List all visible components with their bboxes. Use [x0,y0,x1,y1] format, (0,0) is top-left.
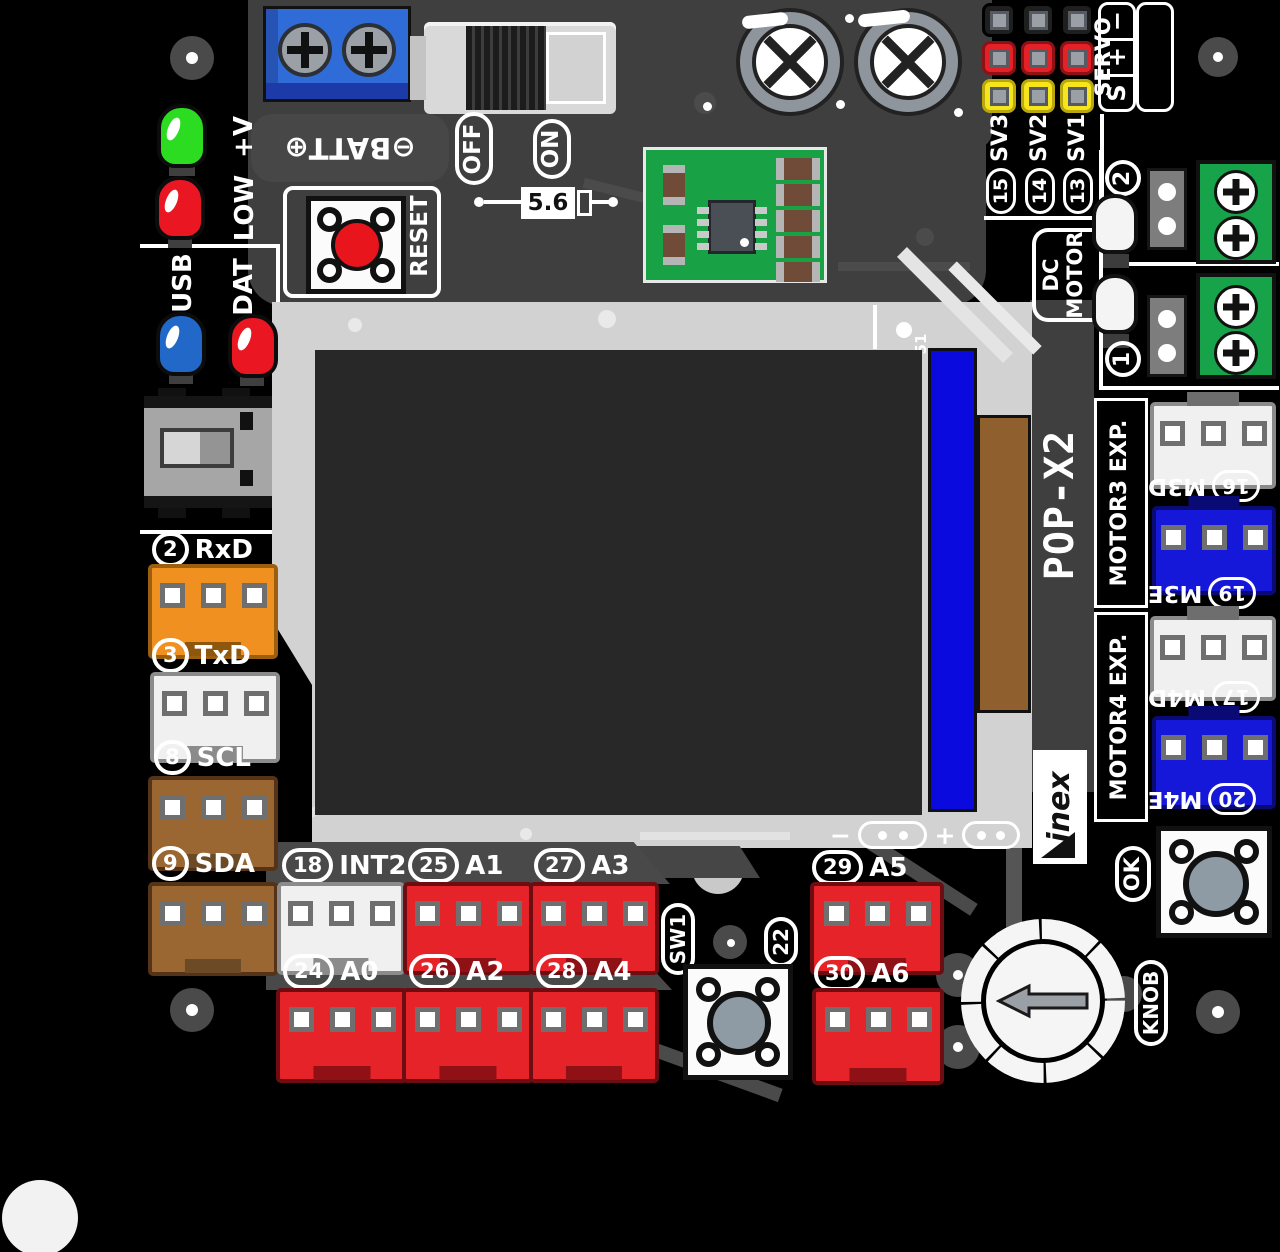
fuse-end [577,190,592,216]
pad-pair [962,821,1020,849]
lcd-silk-trace [640,832,790,840]
switch-slider[interactable] [466,26,546,110]
servo-pin-black[interactable] [1021,3,1055,37]
switch-recess [546,32,606,104]
port-a0-label: 24A0 [283,954,378,989]
sensor-module [643,147,827,283]
servo-title-box [1136,2,1174,112]
dat-label: DAT [229,254,259,320]
dc-bracket [1099,150,1103,390]
power-switch[interactable] [424,22,616,114]
hole-dot [186,1004,198,1016]
dc-led [1092,274,1138,334]
usb-port-opening [160,428,234,468]
port-txd-label: 3TxD [152,638,251,673]
port-a4[interactable] [529,988,659,1083]
trace [1006,836,1022,932]
resistor [776,158,820,180]
port-a5-label: 29A5 [812,850,907,885]
pcb-board: 51 − + ⊖BATT⊕ OFF ON [0,0,1280,1252]
board-model: POP-X2 [1034,417,1086,593]
terminal-screw[interactable] [1214,331,1258,375]
servo-pin-black[interactable] [982,3,1016,37]
terminal-screw[interactable] [1214,170,1258,214]
servo-pin-yellow[interactable] [982,79,1016,113]
port-a6-label: 30A6 [814,956,909,991]
port-m3e-label: 19M3E [1144,578,1260,608]
port-int2-label: 18INT2 [282,848,407,883]
via-dot [954,108,963,117]
port-a0[interactable] [276,988,408,1083]
brand-name: inex [1040,757,1080,857]
fuse-value: 5.6 [528,190,569,216]
resistor [776,210,820,232]
dat-led [228,314,278,378]
reset-label: RESET [406,190,434,282]
servo-ch3-label: 15SV3 [986,112,1016,216]
servo-title: SERVO [1088,5,1118,109]
dc-led [1092,194,1138,254]
batt-label: ⊖BATT⊕ [251,114,449,182]
servo-ch1-label: 13SV1 [1063,112,1093,216]
lcd-flex-cable [928,348,977,812]
fuse-lead [484,200,521,204]
port-a1-label: 25A1 [408,848,503,883]
lcd-connector [977,415,1031,713]
brand-logo: inex [1033,750,1087,864]
ok-button[interactable] [1156,826,1272,938]
off-label: OFF [455,116,493,182]
servo-pin-red[interactable] [982,41,1016,75]
port-a2[interactable] [402,988,534,1083]
port-rxd-label: 2RxD [152,532,253,567]
port-scl-label: 8SCL [154,740,251,775]
sw1-label: SW1 [661,910,695,968]
pad-pair [858,821,928,849]
motor4-exp-title: MOTOR4 EXP. [1102,614,1138,820]
via-dot [836,100,845,109]
pad-dot [727,939,735,947]
lcd-silk-pad [348,318,362,332]
ok-label: OK [1115,847,1151,901]
servo-ch2-label: 14SV2 [1025,112,1055,216]
dc-ch2-label: 2 [1105,160,1141,196]
sw1-pin-label: 22 [764,918,798,966]
on-label: ON [533,120,571,178]
low-label: LOW [230,170,260,246]
motor3-exp-title: MOTOR3 EXP. [1102,400,1138,606]
reset-button[interactable] [306,196,406,294]
dc-connector[interactable] [1147,168,1187,250]
lcd-screen [315,350,922,815]
port-a2-label: 26A2 [409,954,504,989]
ic-chip [708,200,756,254]
batt-label-bar: ⊖BATT⊕ [251,114,449,182]
port-a3-label: 27A3 [534,848,629,883]
low-battery-led [155,176,205,240]
buzzer-dot [1213,52,1223,62]
minus-mark: − [830,821,851,850]
knob-dial[interactable] [961,919,1125,1083]
servo-pin-red[interactable] [1021,41,1055,75]
terminal-screw[interactable] [342,23,396,77]
lcd-mark-dot [896,322,912,338]
resistor [776,236,820,258]
knob-arrow-icon [995,981,1091,1021]
dc-terminal-block[interactable] [1196,160,1276,264]
usb-led [156,312,206,376]
port-sda-label: 9SDA [152,846,255,881]
port-m4e-label: 20M4E [1144,784,1260,814]
battery-marks: − + [830,820,1020,850]
sw1-button[interactable] [683,964,793,1080]
dc-bracket [1099,386,1279,390]
fuse-body: 5.6 [521,187,575,219]
usb-label: USB [168,250,198,316]
port-a6[interactable] [812,988,944,1085]
hole-dot [1212,1006,1224,1018]
power-led-green [157,104,207,168]
trace-pad [916,228,934,246]
capacitor [663,165,685,205]
capacitor [663,225,685,265]
servo-pin-yellow[interactable] [1021,79,1055,113]
terminal-screw[interactable] [278,23,332,77]
corner-pad [2,1180,78,1252]
hole-dot [186,52,198,64]
lcd-silk-pad [598,310,616,328]
port-sda[interactable] [148,882,278,976]
fuse-pad [608,197,618,207]
dc-ch1-label: 1 [1105,341,1141,377]
lcd-mark-line [873,305,877,349]
port-a4-label: 28A4 [536,954,631,989]
lcd-silk-pad [520,828,532,840]
servo-bracket [984,216,1104,220]
plus-mark: + [934,821,955,850]
terminal-screw[interactable] [1214,285,1258,329]
via-dot [703,102,712,111]
terminal-screw[interactable] [1214,216,1258,260]
plus-v-label: +V [229,105,259,169]
dc-connector[interactable] [1147,295,1187,377]
resistor [776,262,820,282]
usb-socket[interactable] [144,388,278,516]
battery-terminal-block[interactable] [263,6,411,102]
resistor [776,184,820,206]
dc-terminal-block[interactable] [1196,273,1276,379]
switch-tab [410,36,426,100]
dc-motor-label: DCMOTOR [1035,227,1091,323]
dc-led-stub [1103,254,1129,268]
via-dot [845,14,854,23]
knob-label: KNOB [1134,961,1168,1045]
fuse-pad [474,197,484,207]
